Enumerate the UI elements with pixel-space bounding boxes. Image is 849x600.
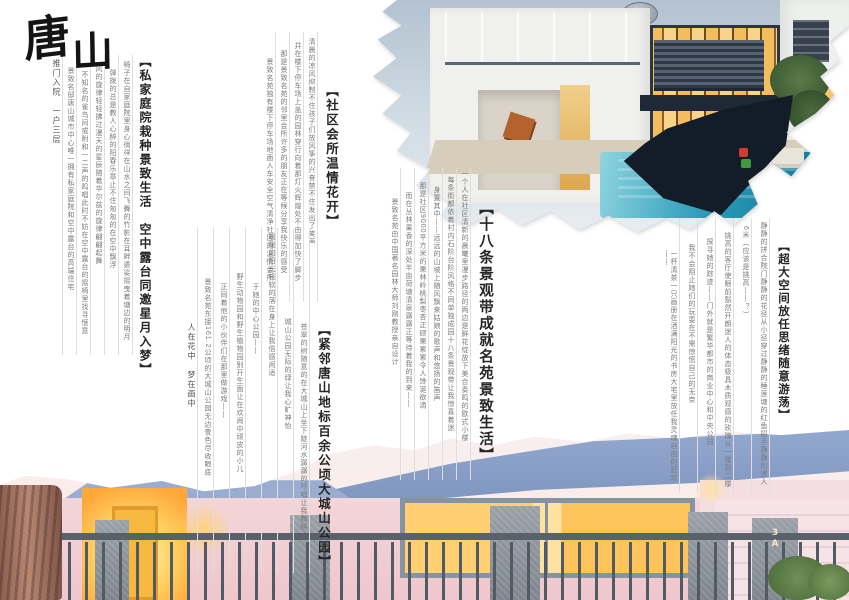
- brand-char-shan: 山: [72, 17, 114, 80]
- shrub: [808, 564, 849, 600]
- house-number: 3 A: [765, 528, 785, 550]
- section-tagline: 人在花中 梦在画中: [187, 228, 198, 573]
- magazine-spread: { "brand": { "name": "唐山", "char1": "唐",…: [0, 0, 849, 600]
- lit-doorway: [560, 85, 590, 190]
- balcony-slats: [654, 40, 764, 91]
- body-column: 景致名苑东接161.2公顷的大城山公园无边景色尽收眼底: [204, 228, 214, 573]
- body-column: 一杯清茶一只画册在洒满阳光的书房大宅里放任我灵魂自由的狂欢——: [663, 218, 680, 493]
- body-column: 静静的拼合院门静静的花径从小径穿过静静的睡莲塘的红鱼招手静静的迷人: [760, 218, 770, 493]
- section-supersize-space: 【超大空间放任思绪随意游荡】 静静的拼合院门静静的花径从小径穿过静静的睡莲塘的红…: [636, 218, 796, 493]
- body-column: 一个人在社区清新的晨曦里漫步路径的两边是鲜花绽放下美合奏鸣的欧式小楼: [461, 168, 471, 480]
- body-column: 6米（应该是挑高——？）: [742, 218, 752, 493]
- section-title: 【超大空间放任思绪随意游荡】: [776, 218, 792, 493]
- red-pool-toy: [739, 148, 748, 157]
- body-column: 弹拨的总是教人心醉的阳春乐章止不住匆匆的在空中飘浮: [109, 55, 119, 355]
- body-column: 暖暖的阳光轻软的落在身上让我倍感闲适: [268, 228, 278, 573]
- section-private-courtyard: 【私家庭院栽种景致生活 空中露台同邀星月入梦】 椅子在自家庭院里身心徜徉在山水之…: [28, 55, 158, 355]
- palm-plant: [788, 90, 834, 134]
- tree-trunk: [0, 485, 62, 600]
- villa-glass-balcony: [445, 12, 640, 65]
- body-column: 而在丛林果香的深处半亩荷塘清泉潺潺正等待着我的到来——: [405, 168, 415, 480]
- body-column: 苍翠的树随意的在大城山上坐下陡河水潺潺的哼唱让我陶醉: [300, 228, 310, 573]
- body-column: 我不会阻止她们的玩耍在不需惊慌自己的无奈: [688, 218, 698, 493]
- body-column: 城山公园无际的绿让我心旷神怡: [284, 228, 294, 573]
- body-column: 探寻她的踪迹——门外就是繁华都市的商业中心和中央公园: [706, 218, 716, 493]
- body-column: 挑高的客厅使眼前豁然开朗迷人的体态极具木质观感的玫瑰从一楼到二楼: [724, 218, 734, 493]
- body-column: 身置其中——远远的山坡上随风飘来姑娘的歌声和悠扬的笛声: [433, 168, 443, 480]
- body-column: 景致名苑由中国著名园林大师刘刚教授亲自设计: [391, 168, 401, 480]
- body-column: 于她的中心公园——: [252, 228, 262, 573]
- brand-logo-tangshan: 唐 山: [16, 2, 126, 77]
- body-column: 每条街都依着村内石阶台阶风格不同单独成园十八条景观带让我惊喜着迷: [447, 168, 457, 480]
- fence-bars: [0, 542, 849, 600]
- body-column: 不知名的雀鸟间或附和一二声的鸣唱此时不妨在空中露台的摇椅里找寻惬意: [81, 55, 91, 355]
- body-column: 那是社区9000平方米的果林岭桃梨枣杏正硕果累累令人馋涎欲滴: [419, 168, 429, 480]
- body-column: 野生动物园和野生植物园别开生面让在欢闹中顽皮的小儿: [236, 228, 246, 573]
- house-number-line1: 3: [765, 528, 785, 539]
- fence-top-rail: [0, 533, 849, 540]
- section-eighteen-belts: 【十八条景观带成就名苑景致生活】 一个人在社区清新的晨曦里漫步路径的两边是鲜花绽…: [378, 168, 500, 480]
- section-tagline: 推门入院 一户三层: [52, 55, 63, 355]
- house-number-line2: A: [765, 539, 785, 550]
- section-title: 【紧邻唐山地标百余公顷大城山公园】: [314, 228, 333, 573]
- green-pool-toy: [741, 159, 751, 168]
- section-dachengshan-park: 【紧邻唐山地标百余公顷大城山公园】 苍翠的树随意的在大城山上坐下陡河水潺潺的哼唱…: [152, 228, 337, 573]
- body-column: 正同着他的小伙伴们在那里做游戏——: [220, 228, 230, 573]
- body-column: 风的旋律轻轻拂过漫天的星辰随着华尔兹的旋律翩翩起舞: [95, 55, 105, 355]
- section-title: 【十八条景观带成就名苑景致生活】: [475, 168, 496, 480]
- body-column: 景致名邸唐山城市中心唯一拥有私家庭院和空中露台的高端住宅: [67, 55, 77, 355]
- brand-char-tang: 唐: [23, 0, 71, 71]
- body-column: 椅子在自家庭院里身心徜徉在山水之间飞舞的竹影在耳畔婆娑摇曳着塘边的明月: [123, 55, 133, 355]
